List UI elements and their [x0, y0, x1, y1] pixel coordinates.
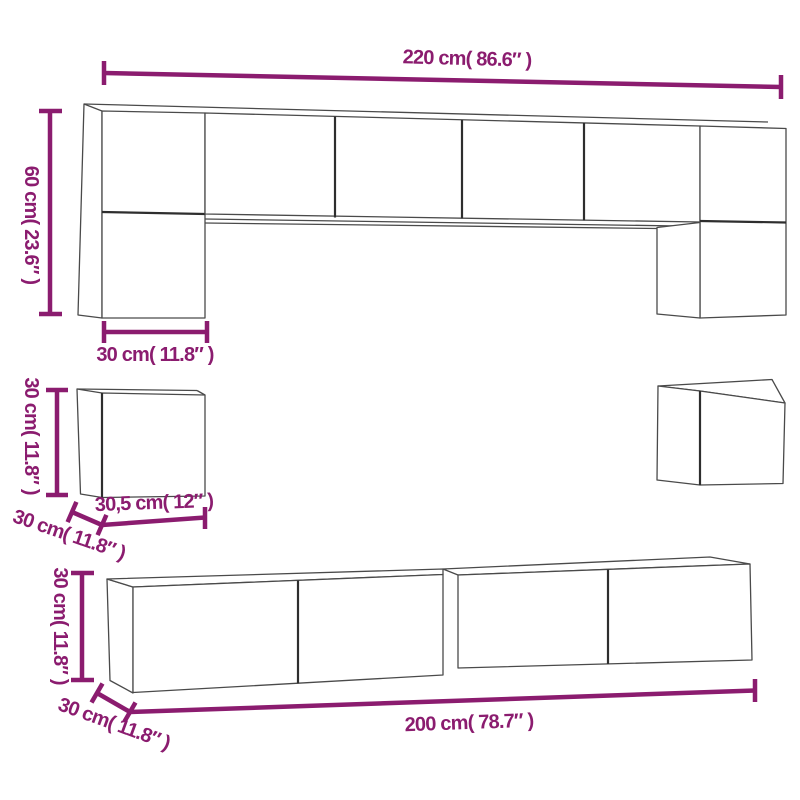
tv-stand-right	[443, 557, 752, 668]
dimension-line	[104, 73, 781, 87]
dimension-label: 30,5 cm( 12″ )	[94, 490, 213, 516]
dimension-label: 200 cm( 78.7″ )	[404, 710, 534, 736]
dim-stand-depth: 30 cm( 11.8″ )	[55, 684, 173, 755]
dim-cube-width: 30,5 cm( 12″ )	[94, 490, 213, 529]
wall-cube-left	[77, 389, 205, 498]
cube-left-front	[102, 393, 205, 498]
dimension-line	[130, 691, 755, 713]
cube-right-front	[700, 391, 785, 485]
stand-right-front	[458, 564, 752, 668]
dimension-label: 220 cm( 86.6″ )	[402, 46, 531, 71]
dim-wall-width: 220 cm( 86.6″ )	[104, 46, 781, 99]
wall-cube-right	[657, 380, 785, 486]
wall-unit-left-side-panel	[78, 104, 102, 318]
cube-right-side-panel	[657, 386, 700, 485]
stand-left-front	[133, 575, 443, 693]
dim-cube-height: 30 cm( 11.8″ )	[20, 377, 68, 495]
wall-unit-right-column-divider	[700, 221, 786, 223]
wall-unit-right-lower-side-panel	[657, 223, 700, 319]
dim-wall-cabinet-width: 30 cm( 11.8″ )	[96, 321, 213, 366]
dimension-line	[102, 518, 205, 526]
cube-left-side-panel	[77, 389, 102, 498]
dimension-label: 30 cm( 11.8″ )	[20, 377, 42, 494]
furniture-dimension-diagram: 220 cm( 86.6″ ) 60 cm( 23.6″ ) 30 cm( 11…	[0, 0, 800, 800]
tv-stand-left	[107, 569, 443, 693]
diagram-canvas: 220 cm( 86.6″ ) 60 cm( 23.6″ ) 30 cm( 11…	[0, 0, 800, 800]
dim-wall-height: 60 cm( 23.6″ )	[20, 111, 62, 314]
wall-unit-top-row	[205, 113, 700, 222]
stand-left-side-panel	[107, 579, 133, 693]
cube-left-top-back-edge	[77, 389, 197, 391]
dimension-label: 30 cm( 11.8″ )	[49, 567, 71, 684]
dimension-label: 60 cm( 23.6″ )	[20, 166, 42, 285]
dimension-label: 30 cm( 11.8″ )	[96, 344, 213, 366]
wall-unit-bridge	[78, 104, 786, 318]
dim-stand-height: 30 cm( 11.8″ )	[49, 567, 94, 684]
wall-unit-shelf-line-b	[205, 223, 657, 229]
